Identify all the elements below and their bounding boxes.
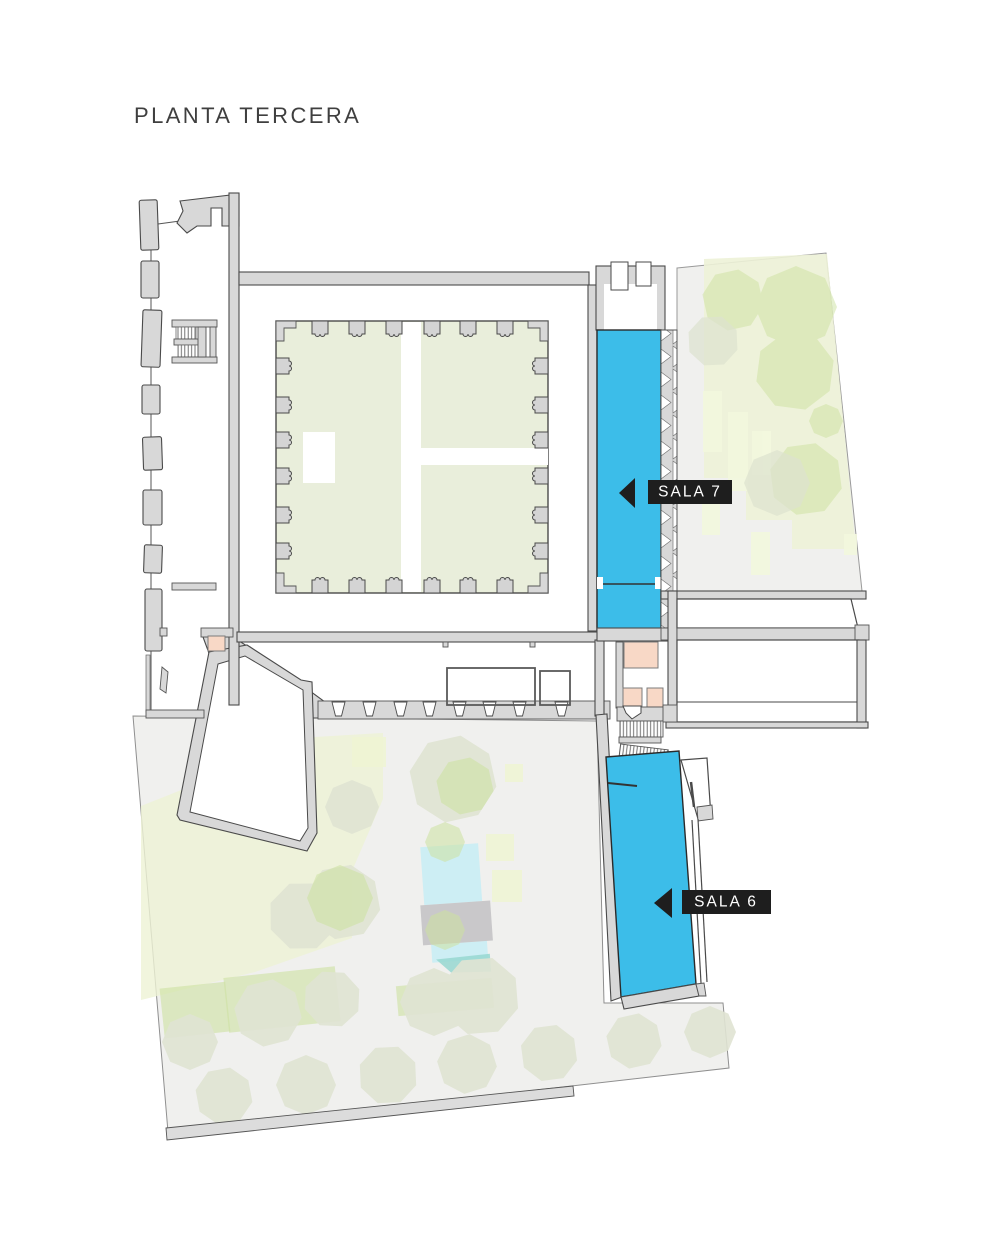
south-facade xyxy=(318,701,610,719)
southwest-hall xyxy=(177,637,325,851)
west-stair xyxy=(172,320,217,363)
gallery-east-wall xyxy=(588,285,597,631)
courtyard xyxy=(276,321,548,593)
sala-6-highlight xyxy=(606,751,696,997)
sala-6-room[interactable] xyxy=(596,714,713,1009)
page-title: PLANTA TERCERA xyxy=(134,103,361,128)
fountain xyxy=(303,432,335,483)
sala-7-label: SALA 7 xyxy=(658,484,722,501)
label-sala-6[interactable]: SALA 6 xyxy=(654,888,771,918)
east-garden xyxy=(677,253,862,591)
sala-6-label: SALA 6 xyxy=(694,894,758,911)
north-wall xyxy=(239,272,589,285)
north-entrance xyxy=(596,262,665,330)
east-building xyxy=(661,591,869,728)
floor-plan-page: SALA 7 SALA 6 PLANTA TERCERA xyxy=(0,0,1001,1251)
floor-plan-svg: SALA 7 SALA 6 PLANTA TERCERA xyxy=(0,0,1001,1251)
buttresses xyxy=(139,200,204,718)
west-bar xyxy=(172,583,216,590)
